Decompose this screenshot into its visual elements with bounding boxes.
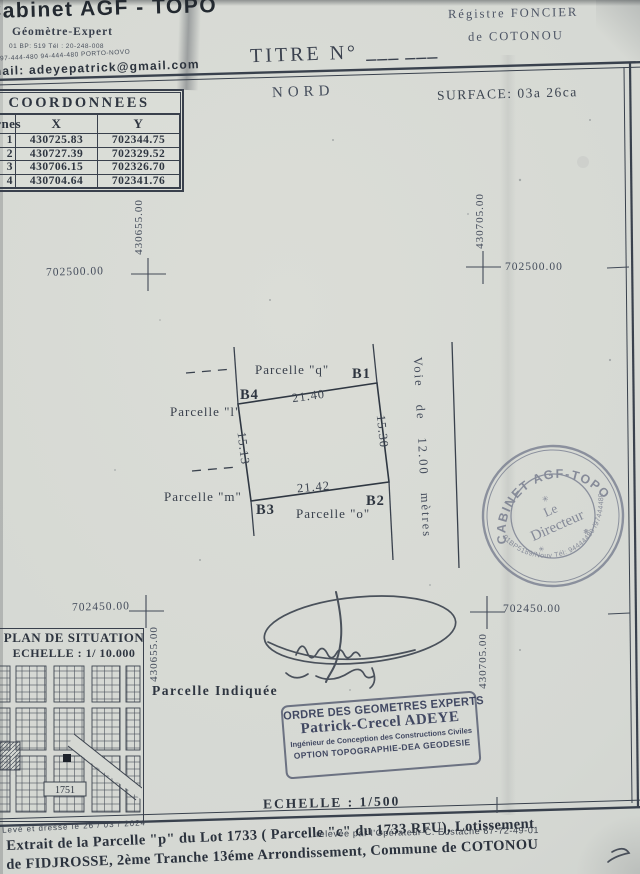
corner-b3: B3 (256, 502, 275, 519)
x-3: 430706.15 (16, 161, 98, 175)
grid-x-bottom-left: 702450.00 (72, 600, 130, 614)
scanned-survey-document: Cabinet AGF - TOPO Géomètre-Expert 01 BP… (0, 0, 640, 874)
main-scale-label: ECHELLE : 1/500 (263, 793, 401, 812)
round-stamp: ✳ CABINET AGF-TOPO ✳ 01BP5189/Nouv Tél: … (463, 426, 640, 606)
corner-b1: B1 (352, 366, 371, 383)
situation-map-graphic: 1751 (0, 664, 142, 818)
grid-y-bottom-left: 430655.00 (148, 619, 160, 689)
registre-foncier-line2: de COTONOU (468, 28, 564, 45)
parcelle-m-label: Parcelle "m" (164, 489, 242, 505)
y-4: 702341.76 (98, 174, 180, 188)
corner-b4: B4 (240, 387, 259, 404)
x-2: 430727.39 (16, 147, 98, 161)
borne-1: 1 (0, 134, 16, 148)
col-y: Y (98, 115, 180, 134)
situation-map-scale: ECHELLE : 1/ 10.000 (0, 646, 148, 661)
parcelle-o-label: Parcelle "o" (296, 506, 370, 522)
registre-foncier-line1: Régistre FONCIER (448, 5, 579, 22)
borne-4: 4 (0, 174, 16, 188)
grid-y-bottom-right: 430705.00 (477, 626, 489, 696)
letterhead-phone-1: 01 BP: 519 Tél : 20-248-008 (9, 43, 104, 50)
y-3: 702326.70 (98, 161, 180, 175)
titre-blank: ___ ___ (366, 39, 439, 63)
grid-crosses (129, 251, 505, 629)
y-2: 702329.52 (98, 147, 180, 161)
x-4: 430704.64 (16, 174, 98, 188)
parcelle-q-label: Parcelle "q" (255, 362, 329, 378)
letterhead-profession: Géomètre-Expert (12, 26, 113, 38)
borne-2: 2 (0, 147, 16, 161)
grid-x-top-right: 702500.00 (505, 261, 563, 273)
grid-y-top-left: 430655.00 (133, 192, 145, 262)
hatched-block (0, 742, 20, 770)
indicated-parcel-label: Parcelle Indiquée (152, 683, 278, 699)
coordinates-table: COORDONNEES Bornes X Y 1 430725.83 70234… (0, 89, 184, 192)
indicated-parcel-mark (63, 754, 71, 762)
table-row: 2 430727.39 702329.52 (0, 147, 180, 161)
coordinates-table-title: COORDONNEES (0, 93, 180, 114)
table-row: 4 430704.64 702341.76 (0, 174, 180, 188)
geometre-stamp: ORDRE DES GEOMETRES EXPERTS Patrick-Crec… (280, 690, 481, 779)
coordinates-header-row: Bornes X Y (0, 115, 180, 134)
borne-3: 3 (0, 161, 16, 175)
col-borne: Bornes (0, 115, 16, 134)
grid-y-top-right: 430705.00 (474, 186, 486, 256)
north-label: NORD (272, 83, 335, 102)
dashed-boundaries (186, 369, 237, 471)
lot-number-label: 1751 (55, 785, 75, 796)
y-1: 702344.75 (98, 134, 180, 148)
situation-map-title: PLAN DE SITUATION (0, 630, 148, 646)
parcelle-l-label: Parcelle "l" (170, 404, 241, 420)
x-1: 430725.83 (16, 134, 98, 148)
col-x: X (16, 115, 98, 134)
table-row: 1 430725.83 702344.75 (0, 134, 180, 148)
titre-label: TITRE N° (250, 42, 359, 68)
dim-bottom-edge: 21.42 (296, 479, 330, 497)
grid-x-top-left: 702500.00 (46, 265, 104, 279)
table-row: 3 430706.15 702326.70 (0, 161, 180, 175)
